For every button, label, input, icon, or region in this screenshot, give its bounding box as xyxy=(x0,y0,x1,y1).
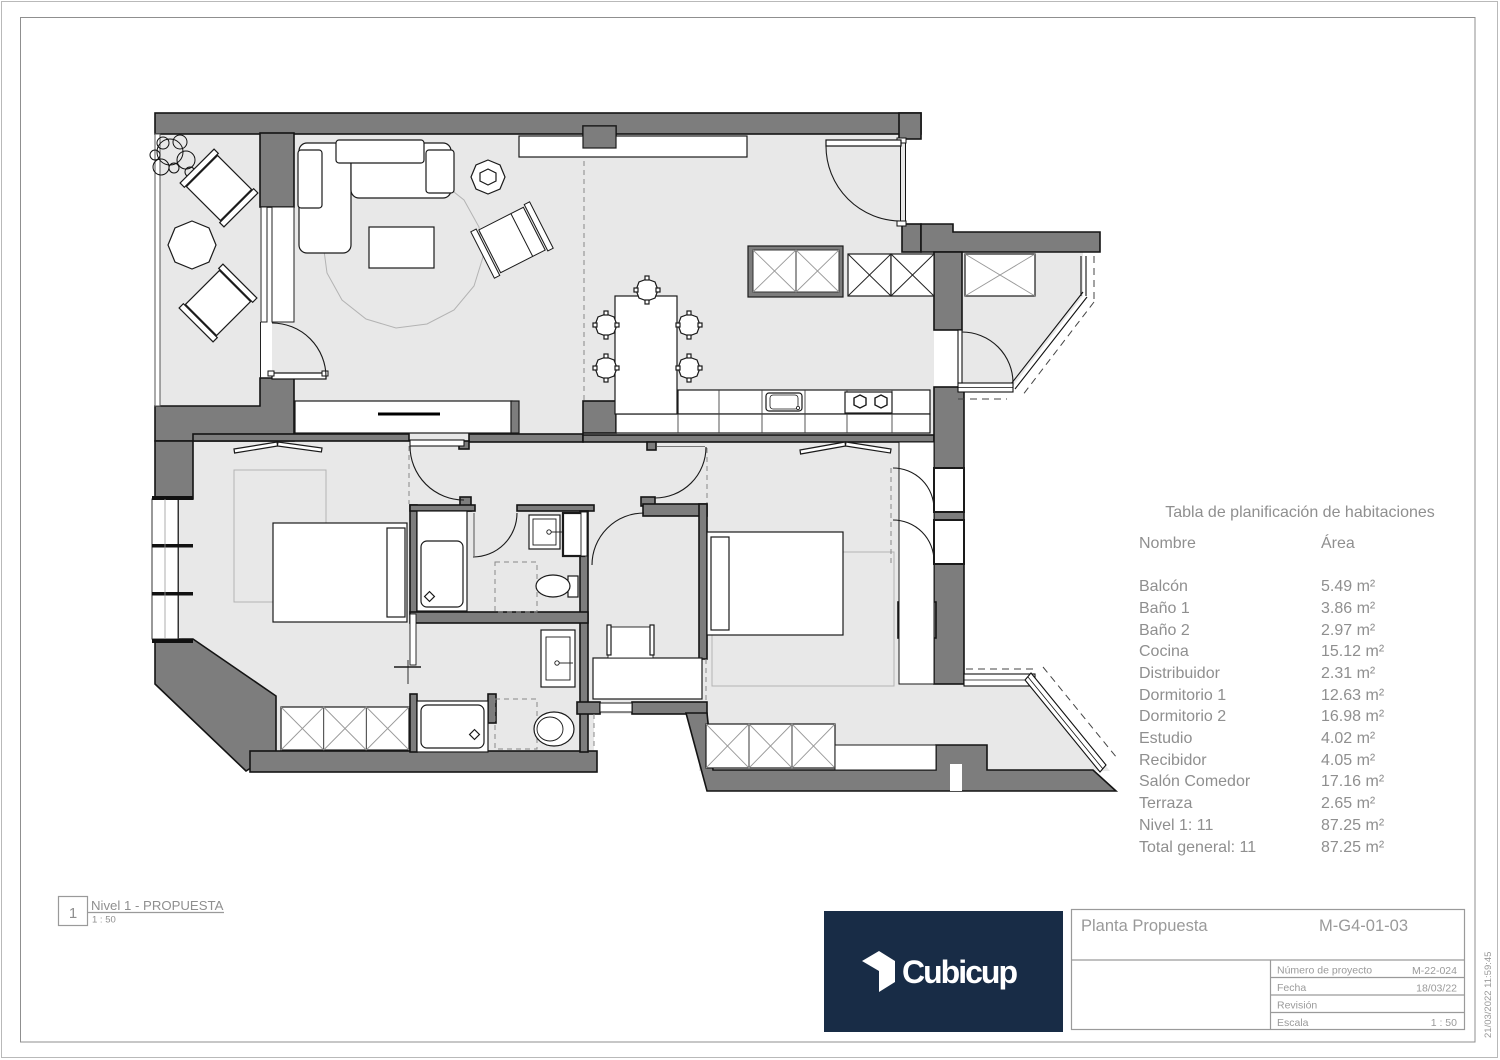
svg-text:Total general: 11: Total general: 11 xyxy=(1139,839,1256,856)
svg-text:Balcón: Balcón xyxy=(1139,578,1188,595)
svg-text:Escala: Escala xyxy=(1277,1017,1309,1029)
svg-text:Dormitorio 2: Dormitorio 2 xyxy=(1139,708,1226,725)
svg-text:Cocina: Cocina xyxy=(1139,643,1189,660)
svg-text:Nivel 1: 11: Nivel 1: 11 xyxy=(1139,817,1214,834)
svg-text:2.97 m²: 2.97 m² xyxy=(1321,622,1376,639)
svg-text:Tabla de planificación de habi: Tabla de planificación de habitaciones xyxy=(1165,504,1435,521)
svg-text:Distribuidor: Distribuidor xyxy=(1139,665,1221,682)
svg-text:16.98 m²: 16.98 m² xyxy=(1321,708,1385,725)
svg-text:Nivel 1 - PROPUESTA: Nivel 1 - PROPUESTA xyxy=(91,898,224,913)
svg-text:M-G4-01-03: M-G4-01-03 xyxy=(1319,917,1408,935)
svg-text:Baño 2: Baño 2 xyxy=(1139,622,1190,639)
svg-text:Número de proyecto: Número de proyecto xyxy=(1277,965,1372,977)
svg-text:2.65 m²: 2.65 m² xyxy=(1321,795,1376,812)
svg-text:18/03/22: 18/03/22 xyxy=(1416,983,1457,995)
svg-text:Salón Comedor: Salón Comedor xyxy=(1139,773,1251,790)
svg-text:1 : 50: 1 : 50 xyxy=(92,915,116,926)
svg-text:Baño 1: Baño 1 xyxy=(1139,600,1190,617)
svg-text:Nombre: Nombre xyxy=(1139,535,1196,552)
svg-text:Estudio: Estudio xyxy=(1139,730,1192,747)
svg-text:87.25 m²: 87.25 m² xyxy=(1321,839,1385,856)
svg-text:4.02 m²: 4.02 m² xyxy=(1321,730,1376,747)
svg-text:Área: Área xyxy=(1321,533,1355,552)
svg-text:3.86 m²: 3.86 m² xyxy=(1321,600,1376,617)
svg-text:Fecha: Fecha xyxy=(1277,982,1306,994)
svg-text:M-22-024: M-22-024 xyxy=(1412,965,1457,977)
svg-text:Dormitorio 1: Dormitorio 1 xyxy=(1139,687,1226,704)
svg-text:1: 1 xyxy=(69,905,77,922)
svg-text:Planta Propuesta: Planta Propuesta xyxy=(1081,917,1208,935)
svg-text:Recibidor: Recibidor xyxy=(1139,752,1207,769)
svg-text:Cubicup: Cubicup xyxy=(902,954,1017,990)
svg-text:Revisión: Revisión xyxy=(1277,1000,1317,1012)
svg-text:12.63 m²: 12.63 m² xyxy=(1321,687,1385,704)
svg-text:21/03/2022 11:59:45: 21/03/2022 11:59:45 xyxy=(1483,952,1494,1038)
svg-text:87.25 m²: 87.25 m² xyxy=(1321,817,1385,834)
svg-text:15.12 m²: 15.12 m² xyxy=(1321,643,1385,660)
svg-text:1 : 50: 1 : 50 xyxy=(1431,1017,1457,1029)
svg-text:2.31 m²: 2.31 m² xyxy=(1321,665,1376,682)
svg-text:4.05 m²: 4.05 m² xyxy=(1321,752,1376,769)
svg-text:17.16 m²: 17.16 m² xyxy=(1321,773,1385,790)
svg-text:Terraza: Terraza xyxy=(1139,795,1192,812)
svg-text:5.49 m²: 5.49 m² xyxy=(1321,578,1376,595)
